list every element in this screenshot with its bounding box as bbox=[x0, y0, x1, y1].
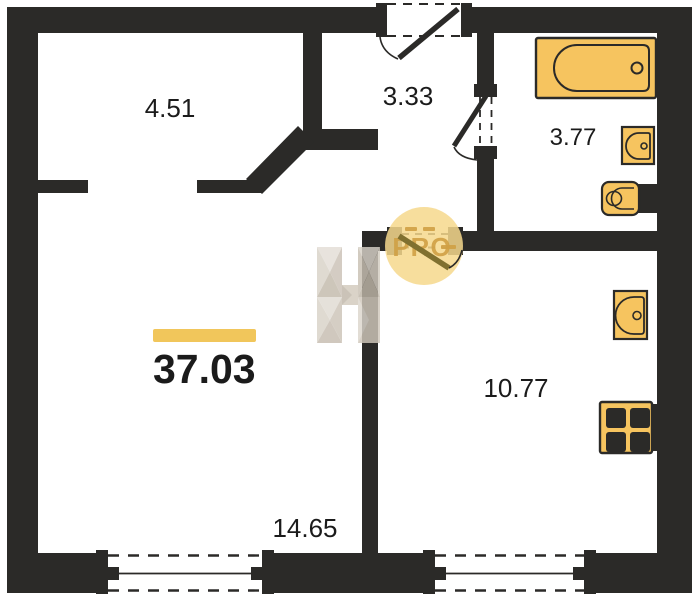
outer-wall-left bbox=[7, 7, 38, 593]
room-label-hallway: 4.51 bbox=[145, 93, 196, 123]
window-frame-block bbox=[251, 567, 262, 580]
toilet-icon bbox=[602, 182, 657, 215]
stove-burner bbox=[630, 408, 650, 428]
bathtub-drain bbox=[632, 63, 643, 74]
room-label-kitchen: 10.77 bbox=[483, 373, 548, 403]
kitchen-sink-icon bbox=[614, 291, 647, 339]
pro-decor-dash bbox=[423, 227, 435, 231]
outer-wall-bottom-2 bbox=[274, 553, 423, 593]
toilet-tank bbox=[638, 184, 657, 213]
room-label-bathroom: 3.77 bbox=[550, 124, 597, 151]
window-frame-block bbox=[108, 567, 119, 580]
hallway-bottom-wall-right bbox=[197, 180, 262, 193]
kitchen-top-wall-right bbox=[461, 231, 657, 251]
window-frame-block bbox=[435, 567, 446, 580]
outer-wall-bottom-3 bbox=[596, 553, 692, 593]
outer-wall-right bbox=[657, 7, 692, 593]
bathroom-door-jamb bbox=[474, 146, 497, 159]
bathtub-icon bbox=[536, 38, 656, 98]
hall-left-wall bbox=[303, 33, 322, 145]
total-area-value: 37.03 bbox=[153, 346, 256, 392]
bathroom-wall-lower bbox=[477, 159, 494, 232]
kitchen-sink-drain bbox=[633, 312, 641, 320]
room-label-entrance-hall: 3.33 bbox=[383, 81, 434, 111]
floor-plan-canvas: PRO bbox=[0, 0, 699, 600]
bathroom-door-jamb bbox=[474, 84, 497, 97]
hall-bottom-shelf-wall bbox=[303, 129, 378, 150]
room-label-living-room: 14.65 bbox=[272, 513, 337, 543]
stove-burner bbox=[606, 432, 626, 452]
window-jamb bbox=[584, 550, 596, 594]
outer-wall-bottom-1 bbox=[7, 553, 96, 593]
toilet-bowl bbox=[602, 182, 639, 215]
sink-drain bbox=[641, 143, 647, 149]
pro-decor-dash bbox=[405, 227, 417, 231]
window-jamb bbox=[96, 550, 108, 594]
window-frame-block bbox=[573, 567, 584, 580]
entrance-door-jamb bbox=[461, 3, 472, 37]
bathroom-sink-icon bbox=[622, 127, 654, 164]
stove-burner bbox=[606, 408, 626, 428]
total-area-accent-bar bbox=[153, 329, 256, 342]
entrance-door-jamb bbox=[376, 3, 387, 37]
outer-wall-top-left bbox=[7, 7, 377, 33]
floor-plan: PRO bbox=[0, 0, 699, 600]
stove-icon bbox=[600, 402, 657, 453]
stove-burner bbox=[630, 432, 650, 452]
bathroom-wall-upper bbox=[477, 33, 494, 86]
window-jamb bbox=[262, 550, 274, 594]
pro-watermark: PRO bbox=[385, 207, 463, 285]
hallway-bottom-wall-left bbox=[38, 180, 88, 193]
window-jamb bbox=[423, 550, 435, 594]
